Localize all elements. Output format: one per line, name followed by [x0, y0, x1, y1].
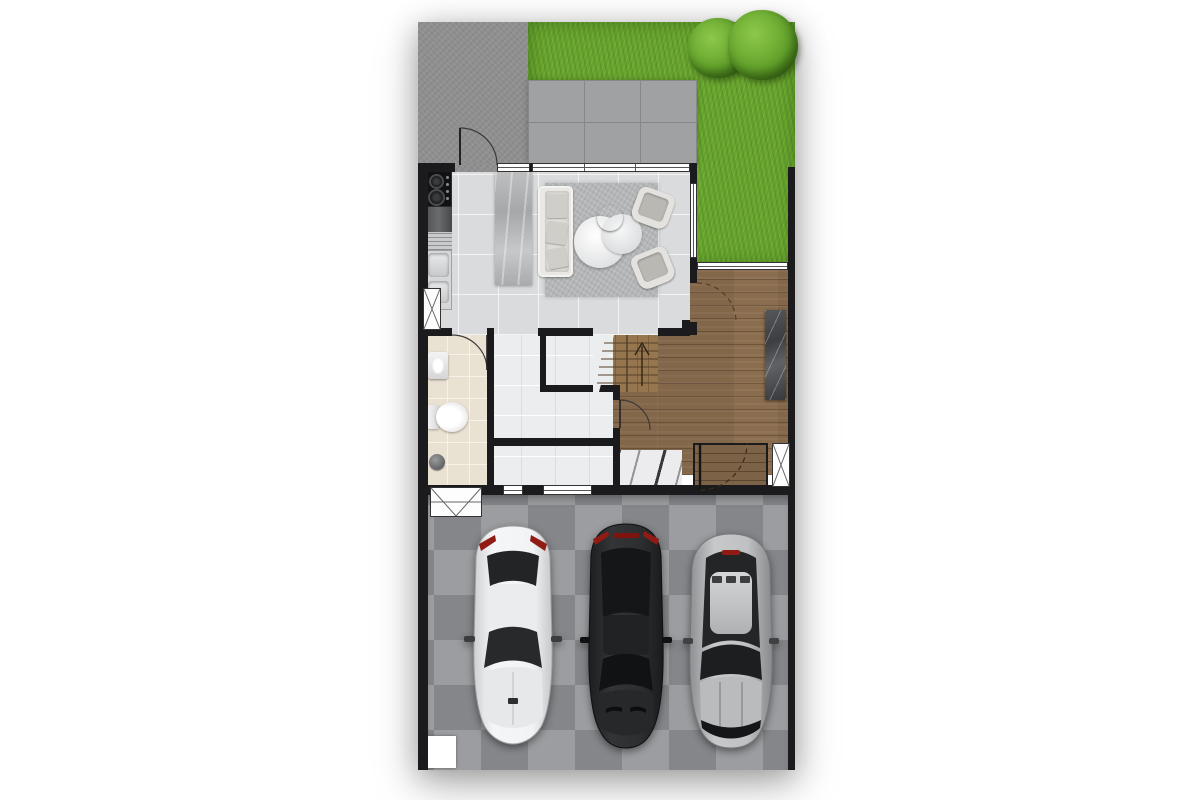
drainboard: [425, 232, 452, 250]
toilet: [428, 402, 468, 432]
shower-drain: [429, 454, 445, 470]
window-bath-bay: [430, 487, 482, 517]
side-yard-concrete: [418, 22, 528, 165]
wall-hall-left: [613, 428, 620, 487]
utility-box: [428, 736, 456, 768]
utility-room-lower: [487, 446, 613, 487]
window-top-large: [532, 163, 690, 172]
island-counter: [495, 172, 532, 285]
marble-console: [765, 310, 786, 400]
wall-stub: [487, 328, 494, 336]
entrance-porch: [693, 443, 768, 490]
window-hall-top: [697, 262, 788, 270]
wall-understair-bottom: [540, 385, 620, 392]
wall-living-bottom: [538, 328, 593, 336]
washbasin: [428, 352, 448, 379]
wall-hall-left: [613, 392, 620, 400]
wall-living-right: [690, 322, 697, 335]
wall-living-right: [690, 165, 697, 183]
wall-understair: [540, 335, 546, 392]
wall-living-right: [690, 258, 697, 283]
marble-threshold: [618, 450, 682, 487]
car-black: [580, 519, 672, 751]
window-utility-b: [543, 485, 592, 495]
car-white: [463, 520, 563, 746]
cooktop: [425, 170, 452, 207]
wall-bath-divider: [487, 336, 494, 487]
kitchen-counter: [425, 207, 452, 232]
patio-tiles: [528, 80, 697, 165]
window-top-small: [497, 163, 530, 172]
shaft-duct: [423, 288, 441, 330]
window-utility-a: [503, 485, 523, 495]
wall-utility-divider: [487, 438, 613, 446]
planter-tray: [597, 205, 623, 231]
floor-plan: [418, 22, 795, 770]
tree-icon: [728, 10, 798, 80]
wall-left: [418, 163, 428, 770]
window-living-right: [690, 183, 697, 258]
side-door-opening: [455, 163, 497, 172]
sofa: [538, 186, 573, 277]
wall-hall-corner: [682, 320, 690, 335]
window-entry-side: [772, 443, 790, 487]
car-silver: [682, 530, 780, 750]
